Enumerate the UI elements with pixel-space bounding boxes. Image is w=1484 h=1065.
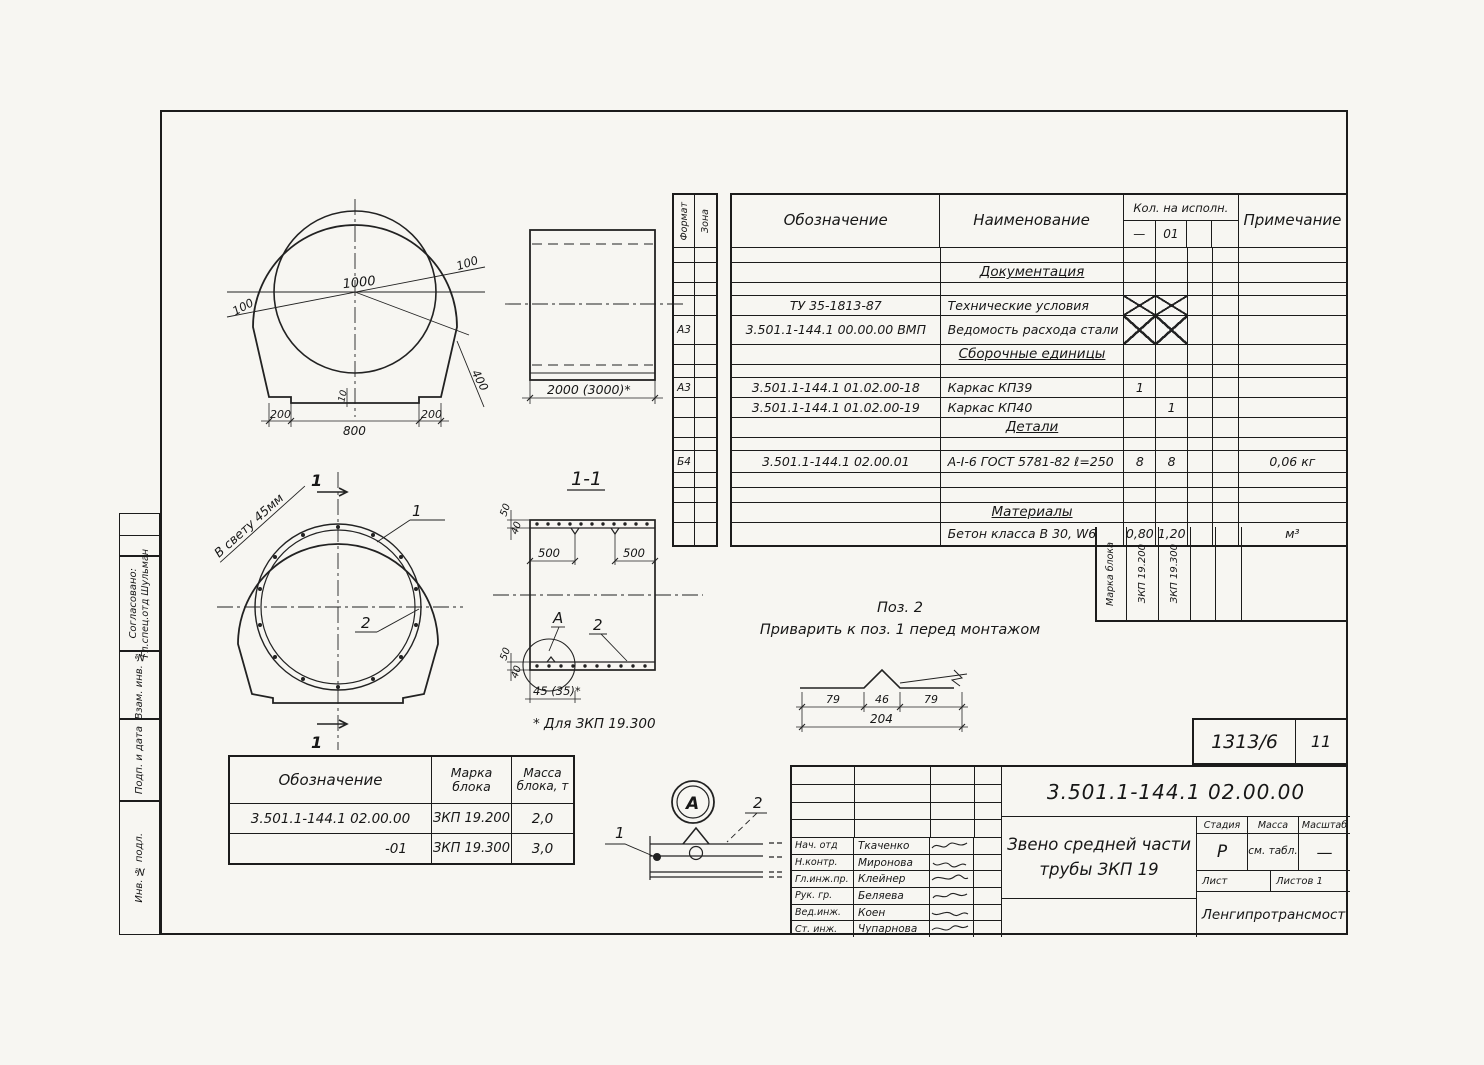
staff-table: Нач. отд Ткаченко Н.контр. Миронова Гл.и… [792, 837, 1002, 937]
block-designation-value: 3.501.1-144.1 02.00.00 [230, 804, 432, 833]
staff-name: Коен [854, 905, 930, 921]
block-mass-value: 3,0 [512, 834, 573, 863]
dim-45-35: 45 (35)* [533, 684, 581, 698]
dim-40-bottom: 40 [509, 664, 524, 680]
spec-row-section: Сборочные единицы [732, 345, 1346, 365]
pos-1-label: 1 [412, 502, 422, 520]
sheet-label: Лист [1197, 871, 1271, 891]
mark-zkp-300: ЗКП 19.300 [1169, 544, 1180, 603]
staff-name: Чупарнова [854, 921, 930, 937]
detail-pos-2: 2 [753, 794, 763, 812]
mark-zkp-200: ЗКП 19.200 [1137, 544, 1148, 603]
format-label: Формат [679, 202, 690, 241]
dim-200-left: 200 [270, 408, 291, 421]
margin-agreed-box: Согласовано: Гл.спец.отд Шульман [119, 556, 160, 651]
dim-100-right: 100 [455, 253, 480, 273]
block-mark-value: ЗКП 19.200 [432, 804, 512, 833]
cut-label-top: 1 [311, 471, 322, 490]
margin-vzam-box: Взам. инв. № [119, 651, 160, 719]
dim-79-left: 79 [826, 693, 840, 706]
spec-row: 3.501.1-144.1 01.02.00-18Каркас КП39 1 [732, 378, 1346, 398]
organization-name: Ленгипротрансмост [1197, 892, 1350, 937]
detail-a-drawing: А 1 2 [595, 768, 800, 898]
staff-row: Нач. отд Ткаченко [792, 838, 1001, 855]
staff-row: Гл.инж.пр. Клейнер [792, 871, 1001, 888]
drawing-title: Звено средней части трубы ЗКП 19 [1002, 817, 1197, 899]
staff-role: Н.контр. [792, 855, 854, 871]
doc-number: 3.501.1-144.1 02.00.00 [1002, 767, 1350, 817]
pos-2-ref: 2 [593, 616, 603, 634]
spec-row: 3.501.1-144.1 00.00.00 ВМПВедомость расх… [732, 316, 1346, 345]
qty-group-header: Кол. на исполн. [1124, 195, 1238, 221]
mass-header: Масса [1248, 817, 1299, 833]
weld-profile-drawing: 79 46 79 204 [782, 650, 982, 738]
signature [930, 921, 974, 937]
block-row: -01 ЗКП 19.300 3,0 [230, 834, 573, 863]
format-value: Б4 [674, 451, 695, 472]
staff-name: Клейнер [854, 871, 930, 887]
dim-2000: 2000 (3000)* [547, 382, 631, 397]
dim-500-left: 500 [538, 546, 560, 560]
format-value: А3 [674, 378, 695, 397]
spec-row: ТУ 35-1813-87Технические условия [732, 296, 1346, 316]
front-view-drawing: 1000 100 100 400 200 800 200 10 [225, 195, 490, 443]
spec-row-section: Детали [732, 418, 1346, 438]
scale-header: Масштаб [1299, 817, 1350, 833]
format-value: А3 [674, 316, 695, 344]
detail-pos-1: 1 [615, 824, 625, 842]
block-mass-header: Масса блока, т [512, 757, 573, 803]
format-column-header: Формат [674, 195, 695, 247]
section-title: 1-1 [571, 468, 602, 490]
stage-value: Р [1197, 834, 1248, 870]
qty-cross [1156, 316, 1187, 344]
stage-header: Стадия [1197, 817, 1248, 833]
staff-row: Вед.инж. Коен [792, 905, 1001, 922]
block-table: Обозначение Марка блока Масса блока, т 3… [228, 755, 575, 865]
qty-col2-header: 01 [1156, 221, 1188, 247]
signature [930, 838, 974, 854]
staff-row: Ст. инж. Чупарнова [792, 921, 1001, 937]
signature [930, 888, 974, 904]
name-column-header: Наименование [940, 195, 1124, 247]
signature [930, 905, 974, 921]
margin-podp-box: Подп. и дата [119, 719, 160, 801]
spec-row-section: Документация [732, 263, 1346, 283]
staff-name: Миронова [854, 855, 930, 871]
spec-row [732, 473, 1346, 488]
title-block: Нач. отд Ткаченко Н.контр. Миронова Гл.и… [790, 765, 1348, 935]
spec-row [732, 248, 1346, 263]
spec-row [732, 283, 1346, 296]
zone-label: Зона [700, 209, 711, 233]
spec-row [732, 365, 1346, 378]
clearance-note: В свету 45мм [211, 490, 286, 560]
dim-500-right: 500 [623, 546, 645, 560]
drawing-sheet: Согласовано: Гл.спец.отд Шульман Взам. и… [0, 0, 1484, 1065]
side-view-drawing: 2000 (3000)* [505, 218, 685, 414]
pos2-text: Приварить к поз. 1 перед монтажом [745, 620, 1055, 642]
section-footnote: * Для ЗКП 19.300 [533, 716, 656, 732]
dim-800: 800 [343, 424, 366, 438]
block-designation-header: Обозначение [230, 757, 432, 803]
block-mark-header: Марка блока [432, 757, 512, 803]
qty-cross [1124, 296, 1155, 315]
spec-row [732, 488, 1346, 503]
staff-name: Ткаченко [854, 838, 930, 854]
staff-row: Рук. гр. Беляева [792, 888, 1001, 905]
block-mass-value: 2,0 [512, 804, 573, 833]
dim-40-top: 40 [509, 520, 524, 536]
block-row: 3.501.1-144.1 02.00.00 ЗКП 19.200 2,0 [230, 804, 573, 834]
cut-label-bottom: 1 [311, 733, 322, 752]
dim-400: 400 [469, 367, 492, 393]
staff-row: Н.контр. Миронова [792, 855, 1001, 872]
mark-label: Марка блока [1106, 542, 1116, 606]
ring-view-drawing: 1 1 1 2 В свету 45мм [205, 462, 475, 758]
scale-value: — [1299, 834, 1350, 870]
block-designation-value: -01 [230, 834, 432, 863]
spec-table: Обозначение Наименование Кол. на исполн.… [730, 193, 1348, 547]
staff-role: Вед.инж. [792, 905, 854, 921]
spec-format-strip: Формат Зона А3 А3 Б4 [672, 193, 718, 547]
dim-10: 10 [336, 389, 349, 403]
spec-row: 3.501.1-144.1 01.02.00-19Каркас КП40 1 [732, 398, 1346, 418]
staff-role: Гл.инж.пр. [792, 871, 854, 887]
staff-role: Рук. гр. [792, 888, 854, 904]
dim-46: 46 [875, 693, 889, 706]
margin-inv-label: Инв. № подл. [134, 833, 145, 903]
mass-value: см. табл. [1248, 834, 1299, 870]
block-mark-value: ЗКП 19.300 [432, 834, 512, 863]
qty-cross [1156, 296, 1187, 315]
pos2-note: Поз. 2 Приварить к поз. 1 перед монтажом [745, 598, 1055, 642]
stamp-box: 1313/6 11 [1192, 718, 1348, 765]
qty-col1-header: — [1124, 221, 1156, 247]
pos2-title: Поз. 2 [745, 598, 1055, 620]
signature [930, 855, 974, 871]
detail-a-ref: А [552, 609, 563, 627]
spec-row: 3.501.1-144.1 02.00.01А-I-6 ГОСТ 5781-82… [732, 451, 1346, 473]
margin-inv-box: Инв. № подл. [119, 801, 160, 935]
signature [930, 871, 974, 887]
detail-a-letter: А [684, 794, 699, 814]
dim-79-right: 79 [924, 693, 938, 706]
margin-agreed-label: Согласовано: [128, 568, 139, 639]
qty-cross [1124, 316, 1155, 344]
drawing-title-line1: Звено средней части [1007, 833, 1191, 858]
staff-role: Нач. отд [792, 838, 854, 854]
dim-100-left: 100 [230, 295, 256, 318]
sheets-label: Листов 1 [1271, 871, 1350, 891]
dim-204: 204 [870, 712, 893, 726]
dim-200-right: 200 [421, 408, 442, 421]
stamp-number: 1313/6 [1194, 720, 1296, 763]
staff-role: Ст. инж. [792, 921, 854, 937]
spec-row-section: Материалы [732, 503, 1346, 523]
drawing-title-line2: трубы ЗКП 19 [1039, 858, 1158, 883]
margin-podp-label: Подп. и дата [134, 726, 145, 794]
margin-vzam-label: Взам. инв. № [134, 651, 145, 720]
zone-column-header: Зона [695, 195, 716, 247]
pos-2-label: 2 [361, 614, 371, 632]
designation-column-header: Обозначение [732, 195, 940, 247]
margin-agreed-name: Гл.спец.отд Шульман [140, 549, 151, 658]
note-column-header: Примечание [1239, 195, 1346, 247]
spec-row [732, 438, 1346, 451]
spec-table-footer: Марка блока ЗКП 19.200 ЗКП 19.300 [1095, 527, 1348, 622]
staff-name: Беляева [854, 888, 930, 904]
stamp-code: 11 [1296, 720, 1346, 763]
